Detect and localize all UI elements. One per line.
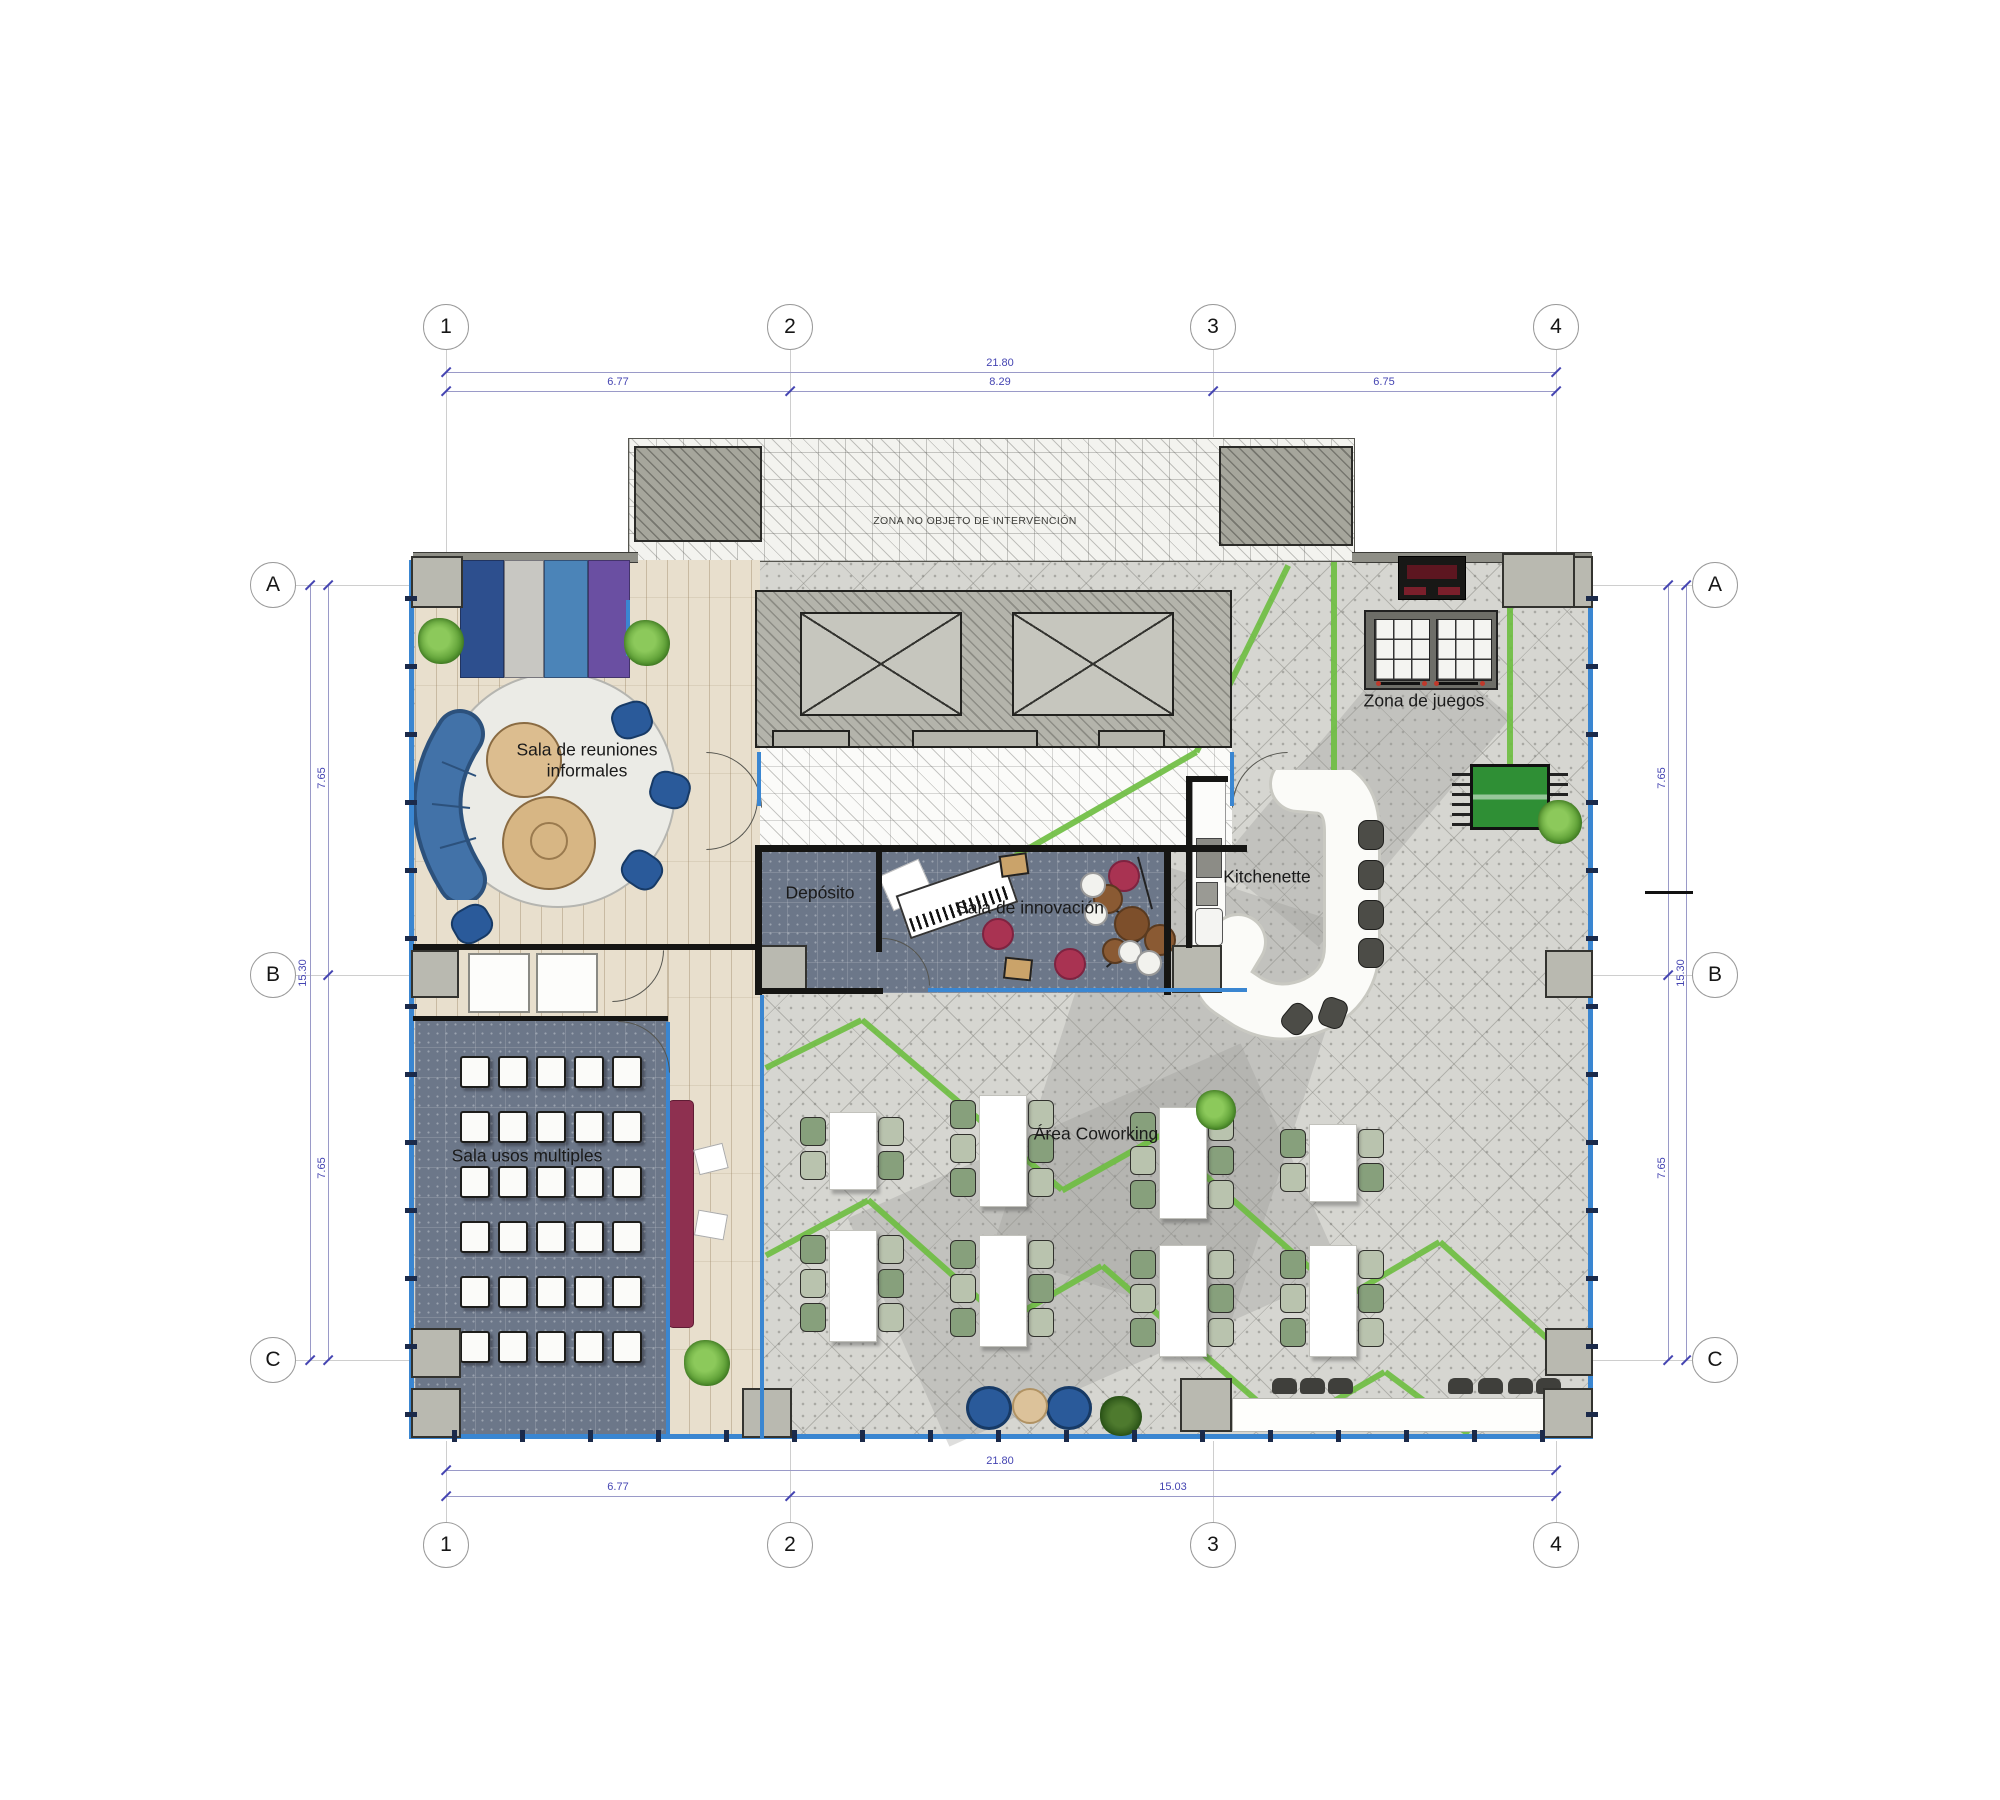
mullion-tick — [1586, 732, 1598, 737]
coworking-chair — [1358, 1318, 1384, 1347]
counter-stool — [1328, 1378, 1353, 1394]
glazing-left — [409, 560, 414, 1438]
grid-bubble-A-right: A — [1692, 562, 1738, 608]
banquette-blue — [544, 560, 588, 678]
mini-table — [999, 852, 1030, 878]
pouf-crimson — [1054, 948, 1086, 980]
grid-stem — [1213, 1441, 1214, 1523]
media-unit — [1398, 556, 1466, 600]
round-side-table — [1012, 1388, 1048, 1424]
mullion-tick — [1586, 1276, 1598, 1281]
coworking-table — [1159, 1107, 1207, 1219]
plant — [684, 1340, 730, 1386]
mullion-tick — [520, 1430, 525, 1442]
pouf-crimson — [982, 918, 1014, 950]
grid-bubble-4-bottom: 4 — [1533, 1522, 1579, 1568]
coworking-chair — [1208, 1318, 1234, 1347]
arcade-rail — [1380, 682, 1420, 685]
coworking-chair — [1280, 1129, 1306, 1158]
multipurpose-chair — [612, 1111, 642, 1143]
elevator-shaft-2 — [1012, 612, 1174, 716]
multipurpose-chair — [498, 1276, 528, 1308]
grid-bubble-B-right: B — [1692, 952, 1738, 998]
arcade-window — [1374, 619, 1430, 681]
mullion-tick — [1064, 1430, 1069, 1442]
media-speaker — [1404, 587, 1426, 595]
dim-line-bottom-segments — [446, 1496, 1556, 1497]
column-B1 — [411, 950, 459, 998]
multipurpose-chair — [536, 1166, 566, 1198]
multipurpose-chair — [536, 1276, 566, 1308]
grid-bubble-C-left: C — [250, 1337, 296, 1383]
multipurpose-chair — [612, 1331, 642, 1363]
multipurpose-chair — [574, 1221, 604, 1253]
mullion-tick — [1586, 1004, 1598, 1009]
mullion-tick — [405, 1276, 417, 1281]
stair-block-left — [634, 446, 762, 542]
games-closet — [1502, 553, 1575, 608]
coworking-chair — [950, 1134, 976, 1163]
column-C4 — [1545, 1328, 1593, 1376]
arcade-dot — [1422, 681, 1427, 686]
multipurpose-chair — [460, 1276, 490, 1308]
wall-meeting-corridor — [413, 944, 762, 950]
coworking-table — [979, 1095, 1027, 1207]
media-screen — [1407, 565, 1457, 579]
multipurpose-chair — [460, 1221, 490, 1253]
dim-top-seg2: 8.29 — [989, 376, 1010, 388]
dim-line-left-overall — [310, 585, 311, 1360]
core-wall-stub — [1098, 730, 1165, 748]
grid-stem — [446, 1441, 447, 1523]
multipurpose-chair — [612, 1276, 642, 1308]
mullion-tick — [405, 596, 417, 601]
cymbal — [1080, 872, 1106, 898]
coworking-chair — [1028, 1274, 1054, 1303]
grid-stem — [1556, 1441, 1557, 1523]
coworking-chair — [1208, 1284, 1234, 1313]
grid-stem — [790, 349, 791, 437]
grid-stem — [790, 1441, 791, 1523]
multipurpose-chair — [498, 1221, 528, 1253]
mullion-tick — [1540, 1430, 1545, 1442]
lobby-door-leaf-left — [757, 752, 761, 806]
grid-bubble-1-top: 1 — [423, 304, 469, 350]
coworking-chair — [1130, 1250, 1156, 1279]
mullion-tick — [1472, 1430, 1477, 1442]
grid-stem — [295, 1360, 411, 1361]
pouf-blue — [1046, 1386, 1092, 1430]
multipurpose-chair — [574, 1276, 604, 1308]
counter-stool — [1300, 1378, 1325, 1394]
wall-corridor-multipurpose — [413, 1016, 668, 1021]
floor-plan: 1 2 3 4 1 2 3 4 A B C A B C 21.80 6.77 8… — [0, 0, 2000, 1800]
coworking-chair — [1358, 1250, 1384, 1279]
multipurpose-chair — [574, 1331, 604, 1363]
dim-bottom-overall: 21.80 — [986, 1455, 1014, 1467]
mullion-tick — [1404, 1430, 1409, 1442]
bar-stool — [1358, 820, 1384, 850]
multipurpose-chair — [612, 1166, 642, 1198]
mullion-tick — [405, 1004, 417, 1009]
glazing-innovation — [928, 988, 1247, 992]
mullion-tick — [792, 1430, 797, 1442]
mullion-tick — [405, 868, 417, 873]
grid-bubble-C-right: C — [1692, 1337, 1738, 1383]
coworking-chair — [1208, 1146, 1234, 1175]
mullion-tick — [405, 664, 417, 669]
arcade-rail — [1438, 682, 1478, 685]
mullion-tick — [405, 1344, 417, 1349]
coworking-chair — [800, 1151, 826, 1180]
appliance — [1196, 882, 1218, 906]
mullion-tick — [405, 1140, 417, 1145]
dim-top-overall: 21.80 — [986, 357, 1014, 369]
bench-maroon — [668, 1100, 694, 1328]
coworking-table — [1309, 1245, 1357, 1357]
column-A1 — [411, 556, 463, 608]
grid-stem — [446, 349, 447, 559]
multipurpose-chair — [574, 1056, 604, 1088]
informal-meeting-label-line1: Sala de reuniones — [516, 740, 657, 761]
coworking-table — [1159, 1245, 1207, 1357]
multipurpose-chair — [460, 1331, 490, 1363]
wall-storage-left — [755, 845, 762, 995]
informal-meeting-label-line2: informales — [547, 761, 628, 782]
dim-line-bottom-overall — [446, 1470, 1556, 1471]
fridge — [1196, 838, 1222, 878]
multipurpose-chair — [498, 1331, 528, 1363]
arcade-window — [1436, 619, 1492, 681]
mullion-tick — [405, 1208, 417, 1213]
mullion-tick — [656, 1430, 661, 1442]
dim-bottom-seg1: 6.77 — [607, 1481, 628, 1493]
mullion-tick — [1586, 1072, 1598, 1077]
grid-stem — [1556, 349, 1557, 559]
banquette-purple — [588, 560, 630, 678]
bar-stool — [1358, 860, 1384, 890]
dim-top-seg3: 6.75 — [1373, 376, 1394, 388]
mullion-tick — [405, 1412, 417, 1417]
games-label: Zona de juegos — [1364, 691, 1485, 712]
multipurpose-chair — [612, 1221, 642, 1253]
mullion-tick — [724, 1430, 729, 1442]
mullion-tick — [928, 1430, 933, 1442]
grid-stem — [295, 975, 411, 976]
bar-stool — [1358, 900, 1384, 930]
coworking-table — [1309, 1124, 1357, 1202]
grid-bubble-A-left: A — [250, 562, 296, 608]
coworking-chair — [878, 1235, 904, 1264]
mullion-tick — [1586, 1344, 1598, 1349]
banquette-navy — [460, 560, 504, 678]
coworking-chair — [800, 1303, 826, 1332]
dim-line-top-segments — [446, 391, 1556, 392]
sink — [1195, 908, 1223, 946]
stair-block-right — [1219, 446, 1353, 546]
coworking-chair — [1028, 1308, 1054, 1337]
arcade-unit — [1364, 610, 1498, 690]
counter-stool — [1478, 1378, 1503, 1394]
coworking-chair — [1130, 1318, 1156, 1347]
grid-stem — [1593, 1360, 1693, 1361]
grid-bubble-3-top: 3 — [1190, 304, 1236, 350]
plant — [624, 620, 670, 666]
mullion-tick — [405, 1072, 417, 1077]
core-wall-stub — [772, 730, 850, 748]
column-kitchen — [1172, 945, 1222, 993]
coworking-chair — [1280, 1318, 1306, 1347]
closet — [536, 953, 598, 1013]
dim-left-top: 7.65 — [316, 767, 328, 788]
arcade-dot — [1434, 681, 1439, 686]
coworking-chair — [950, 1100, 976, 1129]
column-B4 — [1545, 950, 1593, 998]
coworking-chair — [950, 1274, 976, 1303]
mullion-tick — [996, 1430, 1001, 1442]
multipurpose-chair — [498, 1111, 528, 1143]
mullion-tick — [1586, 936, 1598, 941]
grid-bubble-1-bottom: 1 — [423, 1522, 469, 1568]
elevator-shaft-1 — [800, 612, 962, 716]
multipurpose-chair — [498, 1056, 528, 1088]
mullion-tick — [1200, 1430, 1205, 1442]
arcade-dot — [1376, 681, 1381, 686]
grid-stem — [1213, 349, 1214, 437]
coworking-chair — [1130, 1180, 1156, 1209]
coworking-chair — [800, 1235, 826, 1264]
mullion-tick — [452, 1430, 457, 1442]
innovation-label: Sala de innovación — [956, 898, 1104, 919]
core-wall-stub — [912, 730, 1038, 748]
multipurpose-chair — [460, 1166, 490, 1198]
column-C1 — [411, 1328, 461, 1378]
section-marker — [1645, 891, 1693, 894]
coworking-chair — [950, 1168, 976, 1197]
coworking-label: Área Coworking — [1034, 1124, 1159, 1145]
mullion-tick — [1586, 664, 1598, 669]
glazing-corridor — [760, 995, 764, 1438]
coworking-table — [979, 1235, 1027, 1347]
column-bottom-2 — [742, 1388, 792, 1438]
plant — [1538, 800, 1582, 844]
no-intervention-label: ZONA NO OBJETO DE INTERVENCIÓN — [873, 515, 1077, 527]
mullion-tick — [1586, 800, 1598, 805]
wall-innovation-right — [1164, 845, 1171, 995]
lobby-door-leaf-right — [1230, 752, 1234, 806]
dim-right-overall: 15.30 — [1675, 959, 1687, 987]
coworking-chair — [1358, 1284, 1384, 1313]
mullion-tick — [588, 1430, 593, 1442]
coworking-chair — [800, 1269, 826, 1298]
plant — [418, 618, 464, 664]
multipurpose-chair — [498, 1166, 528, 1198]
coworking-chair — [878, 1303, 904, 1332]
arcade-dot — [1480, 681, 1485, 686]
wall-kitchenette-left — [1186, 776, 1192, 948]
counter-stool — [1272, 1378, 1297, 1394]
storage-label: Depósito — [785, 883, 854, 904]
multipurpose-chair — [536, 1331, 566, 1363]
table-ring — [530, 822, 568, 860]
pouf-blue — [966, 1386, 1012, 1430]
media-speaker — [1438, 587, 1460, 595]
wall-storage-bottom — [755, 988, 883, 994]
coworking-chair — [878, 1151, 904, 1180]
multipurpose-chair — [536, 1056, 566, 1088]
plant — [1196, 1090, 1236, 1130]
grid-bubble-2-top: 2 — [767, 304, 813, 350]
grid-bubble-2-bottom: 2 — [767, 1522, 813, 1568]
mullion-tick — [1586, 1208, 1598, 1213]
coworking-chair — [1208, 1250, 1234, 1279]
coworking-chair — [1280, 1250, 1306, 1279]
mullion-tick — [1586, 868, 1598, 873]
closet — [468, 953, 530, 1013]
wall-storage-partition — [876, 852, 882, 952]
window-counter — [1232, 1398, 1562, 1432]
cymbal — [1136, 950, 1162, 976]
coworking-chair — [800, 1117, 826, 1146]
dim-right-top: 7.65 — [1656, 767, 1668, 788]
coworking-table — [829, 1230, 877, 1342]
mullion-tick — [860, 1430, 865, 1442]
grid-stem — [295, 585, 411, 586]
mullion-tick — [1132, 1430, 1137, 1442]
coworking-chair — [1130, 1284, 1156, 1313]
coworking-chair — [878, 1269, 904, 1298]
wall-kitchenette-top — [1186, 776, 1228, 782]
multipurpose-chair — [460, 1111, 490, 1143]
coworking-chair — [950, 1308, 976, 1337]
column-bottom-3 — [1180, 1378, 1232, 1432]
curved-sofa — [402, 700, 532, 900]
glazing-bottom — [409, 1434, 1593, 1439]
coworking-chair — [878, 1117, 904, 1146]
multipurpose-chair — [574, 1111, 604, 1143]
glazing-right — [1588, 560, 1593, 1438]
multipurpose-chair — [574, 1166, 604, 1198]
coworking-chair — [1028, 1240, 1054, 1269]
coworking-chair — [1280, 1163, 1306, 1192]
side-table — [694, 1210, 728, 1241]
mullion-tick — [1268, 1430, 1273, 1442]
coworking-chair — [1208, 1180, 1234, 1209]
dim-left-overall: 15.30 — [297, 959, 309, 987]
kitchenette-label: Kitchenette — [1223, 867, 1311, 888]
mullion-tick — [1586, 596, 1598, 601]
grid-bubble-B-left: B — [250, 952, 296, 998]
banquette-gray — [504, 560, 544, 678]
mini-table — [1003, 957, 1033, 982]
dim-top-seg1: 6.77 — [607, 376, 628, 388]
coworking-chair — [1130, 1146, 1156, 1175]
wall-innovation-top — [755, 845, 1247, 852]
multipurpose-chair — [536, 1111, 566, 1143]
counter-stool — [1508, 1378, 1533, 1394]
mullion-tick — [1586, 1412, 1598, 1417]
glazing-multipurpose — [666, 1022, 670, 1436]
coworking-chair — [1358, 1163, 1384, 1192]
coworking-chair — [950, 1240, 976, 1269]
column-B2 — [755, 945, 807, 993]
multipurpose-chair — [460, 1056, 490, 1088]
coworking-table — [829, 1112, 877, 1190]
multipurpose-chair — [536, 1221, 566, 1253]
multipurpose-label: Sala usos multiples — [452, 1146, 603, 1167]
coworking-chair — [1280, 1284, 1306, 1313]
coworking-chair — [1358, 1129, 1384, 1158]
dim-line-top-overall — [446, 372, 1556, 373]
mullion-tick — [1586, 1140, 1598, 1145]
grid-stem — [1593, 585, 1693, 586]
mullion-tick — [405, 936, 417, 941]
mullion-tick — [1336, 1430, 1341, 1442]
dim-left-bottom: 7.65 — [316, 1157, 328, 1178]
dim-right-bottom: 7.65 — [1656, 1157, 1668, 1178]
dim-bottom-seg2: 15.03 — [1159, 1481, 1187, 1493]
counter-stool — [1448, 1378, 1473, 1394]
coworking-chair — [1028, 1168, 1054, 1197]
grid-bubble-3-bottom: 3 — [1190, 1522, 1236, 1568]
mullion-tick — [405, 732, 417, 737]
grid-bubble-4-top: 4 — [1533, 304, 1579, 350]
bar-stool — [1358, 938, 1384, 968]
mullion-tick — [405, 800, 417, 805]
